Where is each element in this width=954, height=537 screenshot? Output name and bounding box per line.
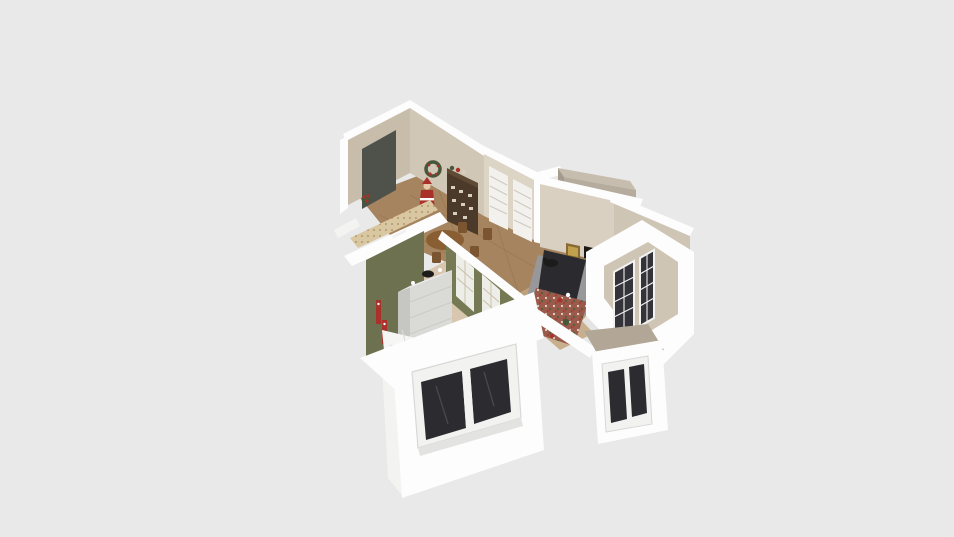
cat-head [543, 258, 548, 263]
floorplan-3d-viewport[interactable] [0, 0, 954, 537]
wreath-berry [435, 173, 438, 176]
gift [558, 298, 563, 303]
wall-edge-band [340, 136, 348, 214]
east-exterior-window [629, 364, 647, 417]
dining-chair [458, 222, 467, 233]
blinds-window-left [489, 166, 508, 230]
gift [566, 293, 570, 297]
dresser-cat [422, 270, 434, 277]
wreath-berry [437, 165, 440, 168]
candle-dot [377, 303, 379, 305]
ornament [550, 334, 554, 338]
hutch-garland [450, 166, 454, 170]
east-exterior-window [608, 369, 627, 423]
dining-chair [432, 252, 441, 263]
hutch-garland [456, 168, 460, 172]
santa-belt [420, 198, 434, 200]
hutch-garland [462, 170, 466, 174]
poinsettia-bloom [365, 199, 368, 202]
wreath-berry [428, 164, 431, 167]
dining-chair [483, 228, 492, 240]
dresser-decor [411, 281, 415, 285]
poinsettia-bloom [366, 194, 369, 197]
poinsettia-bloom [362, 195, 365, 198]
floorplan-render [0, 0, 954, 537]
mini-tree [563, 319, 569, 325]
window-pane [421, 371, 466, 440]
candle-dot [383, 323, 385, 325]
wreath-bow [428, 172, 431, 175]
dresser-decor [438, 268, 442, 272]
